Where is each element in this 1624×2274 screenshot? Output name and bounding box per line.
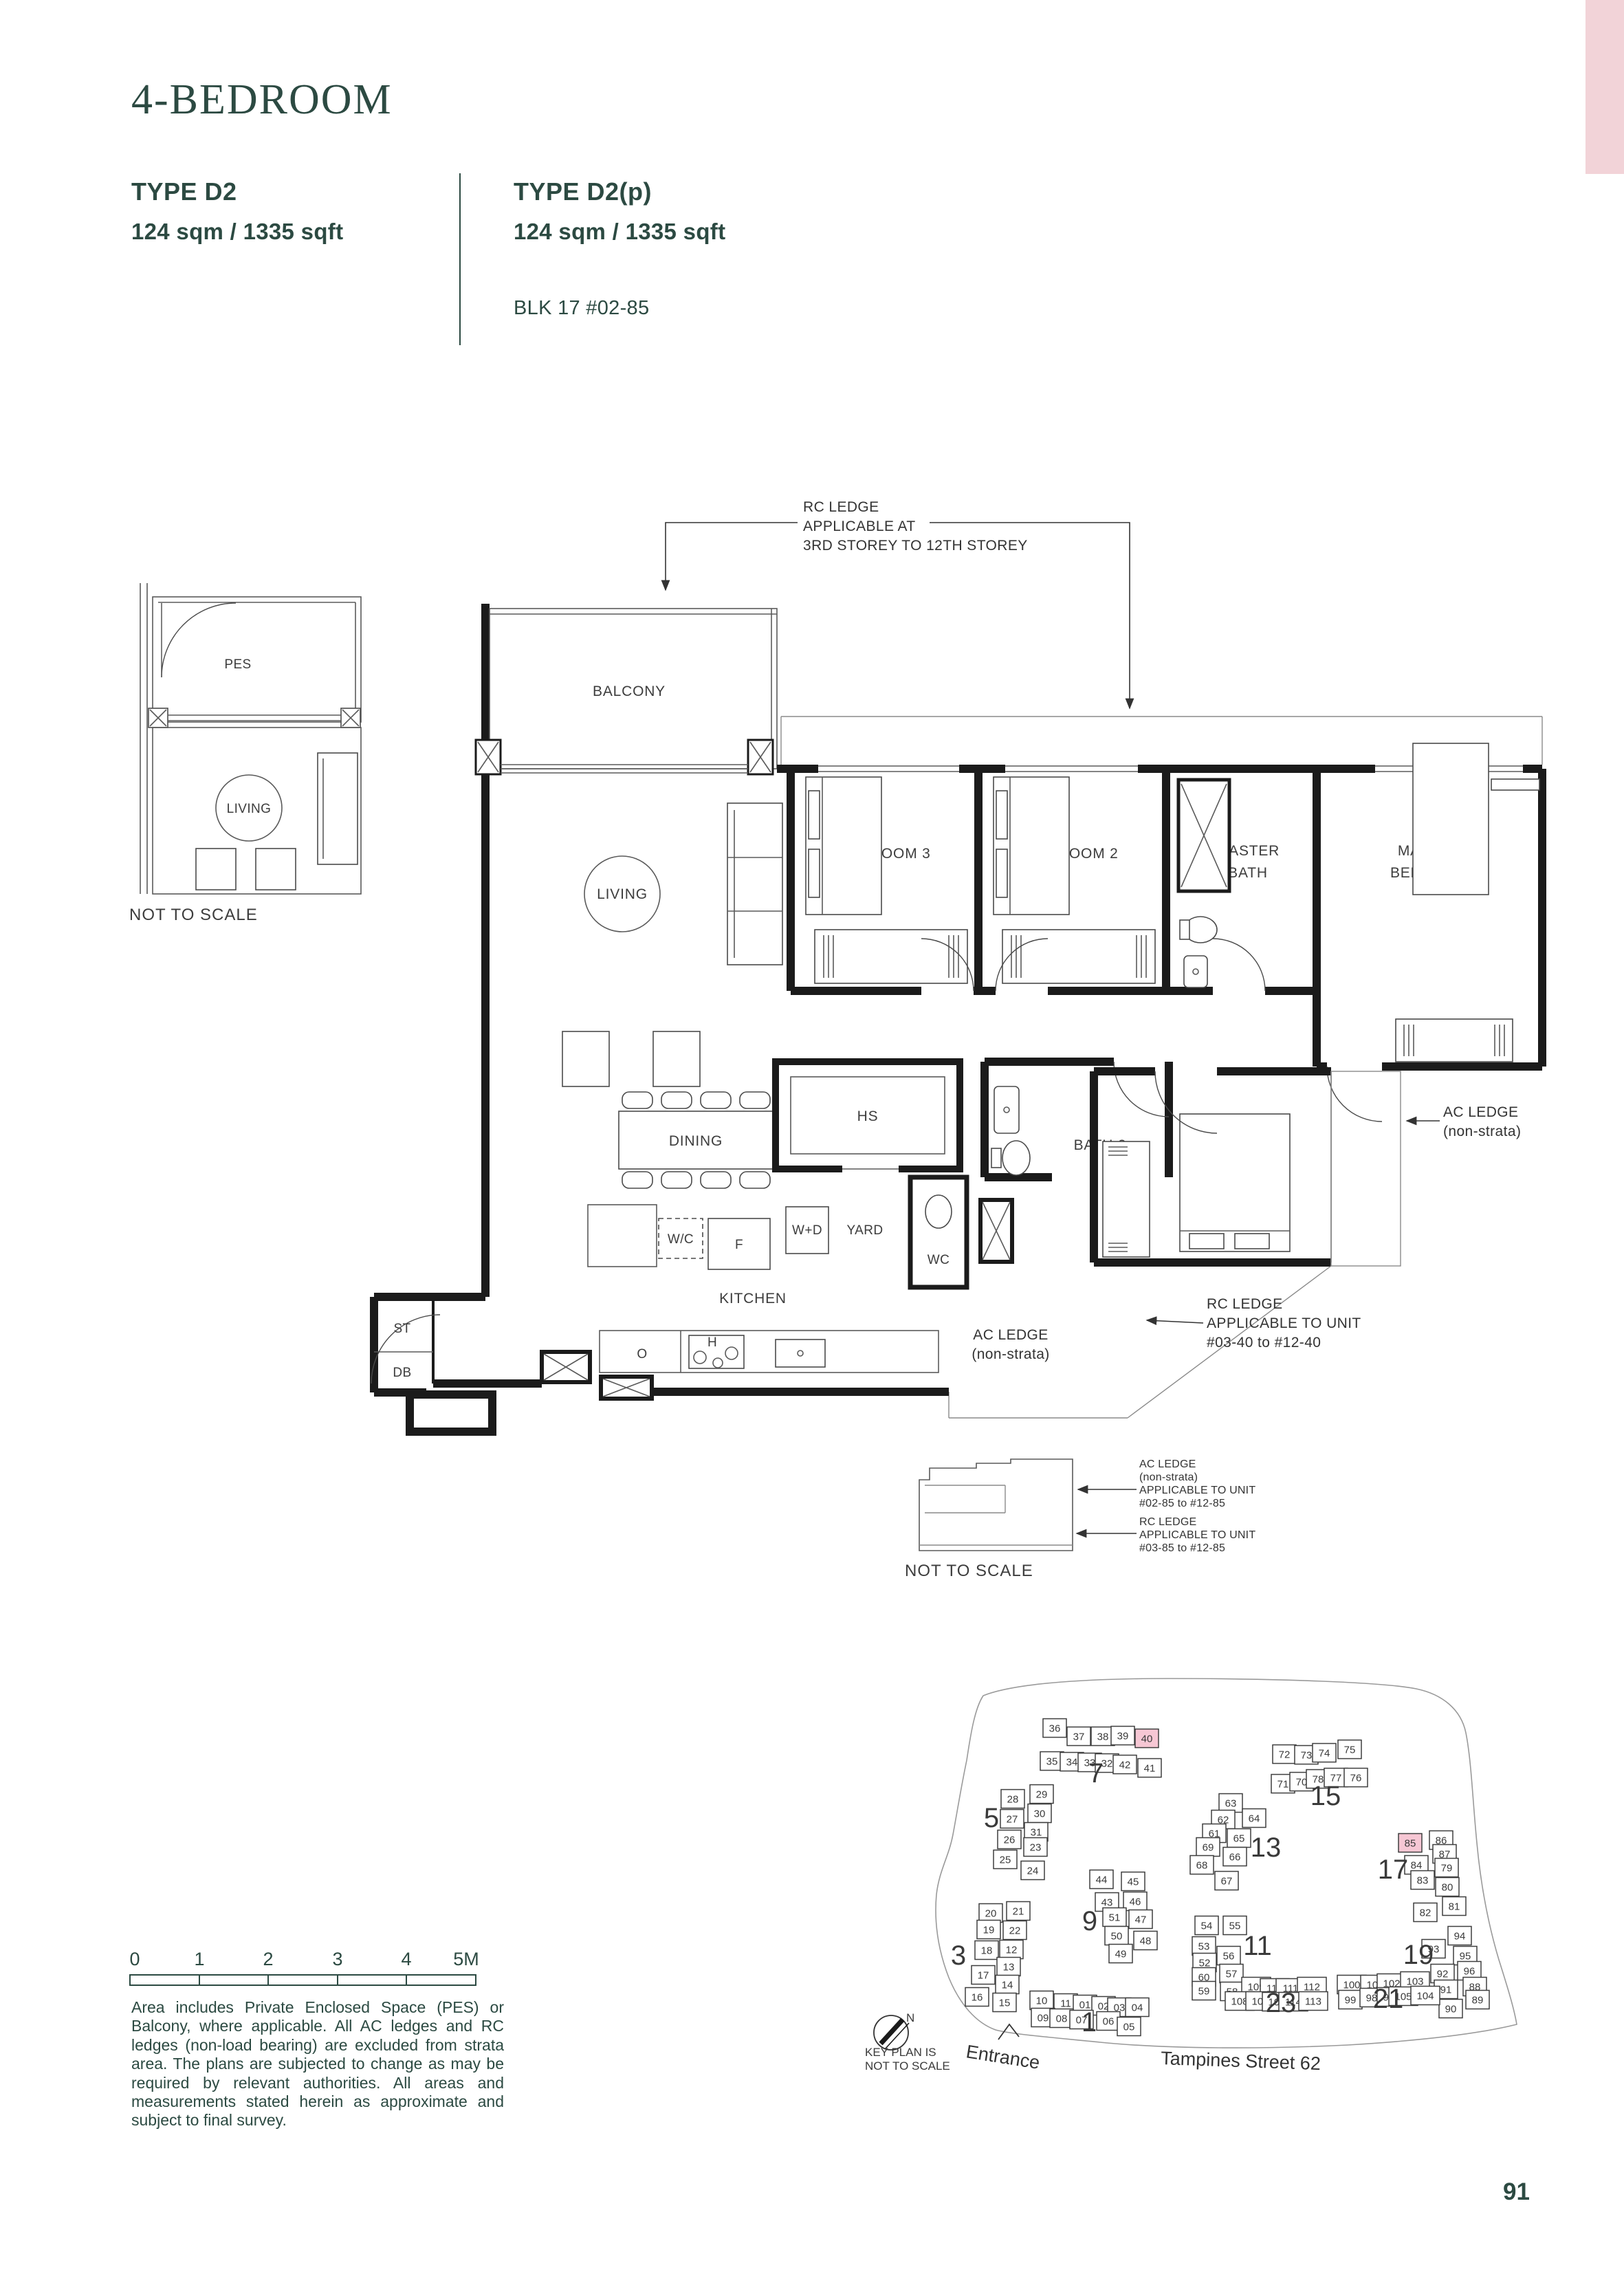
key-plan-block-number: 06 bbox=[1103, 2016, 1115, 2028]
svg-text:APPLICABLE TO UNIT: APPLICABLE TO UNIT bbox=[1207, 1315, 1361, 1331]
key-plan-block: 74 bbox=[1313, 1744, 1336, 1762]
key-plan: 3637383940353433324241282927303126232524… bbox=[865, 1679, 1517, 2074]
key-plan-block: 41 bbox=[1138, 1759, 1161, 1778]
key-plan-block: 79 bbox=[1435, 1859, 1458, 1877]
key-plan-block-number: 76 bbox=[1350, 1773, 1362, 1784]
key-plan-block: 06 bbox=[1097, 2012, 1120, 2031]
key-plan-block-number: 94 bbox=[1454, 1931, 1466, 1943]
detail-not-to-scale: NOT TO SCALE bbox=[905, 1562, 1033, 1580]
key-plan-block: 22 bbox=[1003, 1921, 1027, 1940]
svg-text:(non-strata): (non-strata) bbox=[1443, 1124, 1521, 1139]
scale-5m: 5M bbox=[453, 1949, 479, 1969]
key-plan-block-highlighted: 85 bbox=[1398, 1834, 1422, 1852]
key-plan-block-number: 64 bbox=[1249, 1813, 1260, 1825]
key-plan-block: 14 bbox=[996, 1976, 1019, 1994]
key-plan-block-number: 68 bbox=[1196, 1860, 1208, 1872]
key-plan-block-number: 22 bbox=[1009, 1925, 1021, 1937]
key-plan-block-number: 24 bbox=[1027, 1866, 1039, 1877]
washer-dryer-label: W+D bbox=[792, 1223, 822, 1238]
key-plan-block-number: 16 bbox=[972, 1992, 983, 2004]
svg-text:#03-85 to #12-85: #03-85 to #12-85 bbox=[1139, 1542, 1225, 1554]
key-plan-block-number: 104 bbox=[1416, 1991, 1434, 2002]
fridge-label: F bbox=[735, 1238, 743, 1252]
key-plan-block-number: 46 bbox=[1130, 1896, 1141, 1908]
window-bedroom3 bbox=[818, 763, 959, 774]
key-plan-block: 82 bbox=[1414, 1903, 1437, 1922]
svg-text:3RD STOREY TO 12TH STOREY: 3RD STOREY TO 12TH STOREY bbox=[803, 538, 1028, 554]
key-plan-block-number: 14 bbox=[1002, 1980, 1013, 1991]
key-plan-block: 04 bbox=[1126, 1998, 1149, 2017]
pes-inset-plan: PES LIVING NOT TO SCALE bbox=[129, 583, 361, 924]
key-plan-block: 51 bbox=[1103, 1908, 1126, 1927]
key-plan-block: 44 bbox=[1090, 1870, 1113, 1889]
key-plan-block: 10 bbox=[1030, 1991, 1053, 2010]
key-plan-block-number: 100 bbox=[1343, 1980, 1360, 1991]
db-label: DB bbox=[393, 1366, 411, 1380]
key-plan-block-number: 30 bbox=[1034, 1808, 1046, 1820]
street-label: Tampines Street 62 bbox=[1161, 2048, 1321, 2074]
wc-provision-label: W/C bbox=[668, 1232, 694, 1247]
key-plan-block: 17 bbox=[972, 1966, 995, 1985]
window-bedroom2 bbox=[1005, 763, 1138, 774]
rc-ledge-unit-note: RC LEDGE bbox=[1207, 1296, 1283, 1312]
key-plan-block: 65 bbox=[1227, 1829, 1251, 1848]
key-plan-block: 64 bbox=[1242, 1809, 1266, 1828]
key-plan-block: 48 bbox=[1134, 1932, 1157, 1950]
key-plan-block: 25 bbox=[994, 1850, 1017, 1869]
key-plan-block-number: 73 bbox=[1301, 1750, 1313, 1762]
key-plan-block-number: 04 bbox=[1132, 2002, 1143, 2014]
key-plan-block-number: 41 bbox=[1144, 1763, 1156, 1775]
key-plan-block-number: 83 bbox=[1417, 1875, 1429, 1887]
key-plan-block: 29 bbox=[1030, 1785, 1053, 1804]
key-plan-block-number: 56 bbox=[1223, 1951, 1235, 1963]
key-plan-block: 50 bbox=[1105, 1927, 1128, 1945]
key-plan-block: 36 bbox=[1043, 1719, 1066, 1738]
key-plan-block-number: 81 bbox=[1449, 1901, 1460, 1913]
key-plan-block: 94 bbox=[1448, 1927, 1471, 1945]
key-plan-block: 21 bbox=[1007, 1902, 1030, 1921]
key-plan-block-number: 67 bbox=[1221, 1876, 1233, 1888]
key-plan-block-number: 69 bbox=[1203, 1842, 1214, 1854]
key-plan-block: 72 bbox=[1273, 1745, 1296, 1764]
yard-label: YARD bbox=[847, 1223, 884, 1238]
key-plan-block: 42 bbox=[1113, 1756, 1137, 1774]
key-plan-block-number: 42 bbox=[1119, 1760, 1131, 1771]
key-plan-block: 67 bbox=[1215, 1872, 1238, 1890]
key-plan-block-number: 72 bbox=[1279, 1749, 1291, 1761]
key-plan-block: 83 bbox=[1411, 1871, 1434, 1890]
key-plan-block-number: 113 bbox=[1305, 1996, 1321, 2008]
key-plan-block: 23 bbox=[1024, 1838, 1047, 1857]
ac-ledge-kitchen-note: AC LEDGE bbox=[973, 1327, 1048, 1343]
hs-label: HS bbox=[857, 1108, 879, 1124]
key-plan-cluster-label: 3 bbox=[951, 1940, 966, 1971]
key-plan-block-number: 44 bbox=[1096, 1874, 1108, 1886]
wc-label: WC bbox=[928, 1253, 950, 1267]
pes-living-label: LIVING bbox=[227, 802, 272, 816]
key-plan-block-number: 23 bbox=[1030, 1842, 1042, 1854]
key-plan-cluster-label: 11 bbox=[1243, 1931, 1272, 1961]
key-plan-block-number: 45 bbox=[1128, 1877, 1139, 1888]
key-plan-cluster-label: 23 bbox=[1266, 1988, 1297, 2018]
key-plan-block-highlighted: 40 bbox=[1135, 1729, 1159, 1748]
key-plan-block: 104 bbox=[1411, 1987, 1440, 2005]
key-plan-block-number: 74 bbox=[1319, 1748, 1330, 1760]
key-plan-block: 89 bbox=[1466, 1991, 1489, 2009]
svg-text:APPLICABLE AT: APPLICABLE AT bbox=[803, 518, 916, 534]
pes-label: PES bbox=[224, 657, 251, 672]
key-plan-block-number: 79 bbox=[1441, 1863, 1453, 1874]
entrance-label: Entrance bbox=[965, 2041, 1041, 2073]
key-plan-block-number: 59 bbox=[1198, 1986, 1210, 1998]
key-plan-block-number: 51 bbox=[1109, 1912, 1121, 1924]
key-plan-block: 12 bbox=[1000, 1940, 1023, 1959]
living-label: LIVING bbox=[597, 886, 648, 902]
key-plan-cluster-label: 1 bbox=[1082, 2007, 1097, 2037]
key-plan-block-number: 92 bbox=[1437, 1969, 1449, 1980]
key-plan-block: 28 bbox=[1001, 1790, 1024, 1808]
scale-3: 3 bbox=[332, 1949, 342, 1969]
north-label: N bbox=[906, 2011, 914, 2024]
key-plan-cluster-label: 5 bbox=[984, 1803, 999, 1833]
key-plan-block: 26 bbox=[998, 1830, 1021, 1849]
key-plan-block-number: 85 bbox=[1405, 1838, 1416, 1850]
key-plan-cluster-label: 7 bbox=[1088, 1758, 1104, 1789]
svg-text:APPLICABLE TO UNIT: APPLICABLE TO UNIT bbox=[1139, 1529, 1255, 1541]
key-plan-block: 47 bbox=[1129, 1910, 1152, 1929]
floor-plan-canvas: PES LIVING NOT TO SCALE RC LEDGE APPLICA… bbox=[0, 0, 1624, 2274]
detail-ac-note: AC LEDGE bbox=[1139, 1458, 1196, 1470]
key-plan-block: 63 bbox=[1219, 1794, 1242, 1813]
key-plan-block: 37 bbox=[1067, 1727, 1090, 1746]
kitchen-label: KITCHEN bbox=[719, 1291, 787, 1307]
key-plan-block-number: 37 bbox=[1073, 1731, 1085, 1743]
key-plan-cluster-label: 13 bbox=[1251, 1833, 1282, 1863]
key-plan-block-number: 12 bbox=[1006, 1945, 1018, 1956]
key-plan-cluster-label: 15 bbox=[1310, 1781, 1341, 1811]
key-plan-block-number: 90 bbox=[1445, 2004, 1457, 2015]
key-plan-caption: KEY PLAN IS bbox=[865, 2046, 936, 2059]
svg-text:BATH: BATH bbox=[1228, 865, 1268, 881]
scale-1: 1 bbox=[194, 1949, 204, 1969]
key-plan-block: 05 bbox=[1117, 2018, 1141, 2036]
key-plan-block: 45 bbox=[1121, 1872, 1145, 1891]
key-plan-block-number: 55 bbox=[1229, 1921, 1241, 1932]
key-plan-block: 13 bbox=[997, 1958, 1020, 1976]
key-plan-block-number: 39 bbox=[1117, 1731, 1129, 1742]
key-plan-block-number: 35 bbox=[1046, 1756, 1058, 1768]
key-plan-block-number: 17 bbox=[978, 1970, 989, 1982]
key-plan-block-number: 34 bbox=[1066, 1757, 1078, 1769]
svg-text:(non-strata): (non-strata) bbox=[972, 1346, 1049, 1362]
key-plan-block-number: 20 bbox=[985, 1908, 997, 1920]
key-plan-block: 90 bbox=[1439, 2000, 1462, 2018]
key-plan-block: 53 bbox=[1192, 1937, 1216, 1956]
key-plan-block-number: 53 bbox=[1198, 1941, 1210, 1953]
key-plan-block-number: 48 bbox=[1140, 1936, 1152, 1947]
scale-0: 0 bbox=[129, 1949, 140, 1969]
key-plan-block-number: 75 bbox=[1344, 1745, 1356, 1756]
key-plan-block-number: 65 bbox=[1233, 1833, 1245, 1845]
key-plan-block-number: 13 bbox=[1003, 1962, 1015, 1974]
key-plan-block: 20 bbox=[979, 1904, 1002, 1923]
key-plan-block: 19 bbox=[977, 1921, 1000, 1939]
key-plan-block: 66 bbox=[1223, 1848, 1247, 1866]
key-plan-block-number: 28 bbox=[1007, 1794, 1019, 1806]
key-plan-block: 76 bbox=[1344, 1769, 1368, 1787]
key-plan-block-number: 08 bbox=[1056, 2013, 1068, 2025]
key-plan-block-number: 70 bbox=[1296, 1777, 1308, 1789]
key-plan-block-number: 91 bbox=[1440, 1985, 1452, 1996]
key-plan-block: 30 bbox=[1028, 1804, 1051, 1823]
key-plan-block: 68 bbox=[1190, 1856, 1214, 1874]
key-plan-block: 39 bbox=[1111, 1727, 1134, 1745]
key-plan-block: 49 bbox=[1109, 1945, 1132, 1963]
key-plan-block-number: 36 bbox=[1049, 1723, 1061, 1735]
key-plan-block-number: 63 bbox=[1225, 1798, 1237, 1810]
key-plan-block-number: 25 bbox=[1000, 1855, 1011, 1866]
key-plan-block-number: 40 bbox=[1141, 1734, 1153, 1745]
svg-text:APPLICABLE TO UNIT: APPLICABLE TO UNIT bbox=[1139, 1485, 1255, 1496]
north-compass-icon: N bbox=[874, 2011, 914, 2050]
key-plan-block-number: 84 bbox=[1411, 1860, 1423, 1872]
key-plan-blocks: 3637383940353433324241282927303126232524… bbox=[965, 1719, 1489, 2036]
key-plan-block: 113 bbox=[1299, 1992, 1328, 2011]
key-plan-block-number: 11 bbox=[1060, 1998, 1071, 2010]
key-plan-block: 56 bbox=[1217, 1947, 1240, 1965]
key-plan-block: 54 bbox=[1195, 1916, 1218, 1935]
key-plan-block-number: 95 bbox=[1460, 1951, 1471, 1963]
key-plan-block-number: 27 bbox=[1007, 1814, 1018, 1826]
key-plan-block: 59 bbox=[1192, 1982, 1216, 2000]
key-plan-block-number: 19 bbox=[983, 1925, 995, 1936]
balcony-label: BALCONY bbox=[593, 684, 666, 699]
dining-label: DINING bbox=[669, 1133, 723, 1149]
key-plan-block: 24 bbox=[1021, 1861, 1044, 1880]
svg-text:(non-strata): (non-strata) bbox=[1139, 1472, 1198, 1483]
key-plan-block: 57 bbox=[1220, 1965, 1243, 1983]
ledge-detail-inset: AC LEDGE (non-strata) APPLICABLE TO UNIT… bbox=[905, 1458, 1255, 1580]
rc-ledge-top-note: RC LEDGE bbox=[803, 499, 879, 515]
key-plan-block-number: 66 bbox=[1229, 1852, 1241, 1863]
key-plan-block-number: 05 bbox=[1123, 2022, 1135, 2033]
key-plan-block-number: 21 bbox=[1013, 1906, 1024, 1918]
key-plan-block-number: 50 bbox=[1111, 1931, 1123, 1943]
key-plan-block-number: 38 bbox=[1097, 1731, 1109, 1743]
key-plan-cluster-label: 17 bbox=[1378, 1855, 1409, 1885]
ac-ledge-right-note: AC LEDGE bbox=[1443, 1104, 1518, 1120]
key-plan-cluster-label: 9 bbox=[1082, 1906, 1097, 1936]
key-plan-block-number: 54 bbox=[1201, 1921, 1213, 1932]
key-plan-cluster-label: 19 bbox=[1403, 1940, 1434, 1970]
key-plan-block: 75 bbox=[1338, 1740, 1361, 1759]
key-plan-block: 80 bbox=[1436, 1878, 1459, 1896]
scale-2: 2 bbox=[263, 1949, 273, 1969]
key-plan-block: 99 bbox=[1339, 1991, 1362, 2009]
key-plan-block: 81 bbox=[1442, 1897, 1466, 1916]
st-label: ST bbox=[393, 1322, 410, 1336]
main-floor-plan: RC LEDGE APPLICABLE AT 3RD STOREY TO 12T… bbox=[371, 499, 1542, 1432]
key-plan-block-number: 99 bbox=[1345, 1995, 1357, 2007]
key-plan-block-number: 15 bbox=[999, 1998, 1011, 2009]
scale-bar: 0 1 2 3 4 5M bbox=[129, 1949, 479, 1985]
key-plan-block-number: 26 bbox=[1004, 1835, 1016, 1846]
key-plan-block-number: 80 bbox=[1442, 1882, 1453, 1894]
svg-text:#03-40 to #12-40: #03-40 to #12-40 bbox=[1207, 1335, 1321, 1351]
key-plan-block-number: 71 bbox=[1277, 1779, 1289, 1791]
svg-text:#02-85 to #12-85: #02-85 to #12-85 bbox=[1139, 1498, 1225, 1509]
key-plan-block: 15 bbox=[993, 1993, 1016, 2012]
key-plan-block: 46 bbox=[1123, 1892, 1147, 1911]
key-plan-cluster-label: 21 bbox=[1373, 1984, 1404, 2014]
oven-label: O bbox=[637, 1347, 647, 1362]
key-plan-block: 69 bbox=[1196, 1838, 1220, 1857]
key-plan-block-number: 09 bbox=[1038, 2013, 1049, 2024]
key-plan-block-number: 89 bbox=[1472, 1995, 1484, 2007]
key-plan-block-number: 57 bbox=[1226, 1969, 1238, 1980]
detail-rc-note: RC LEDGE bbox=[1139, 1516, 1196, 1528]
key-plan-block-number: 18 bbox=[981, 1945, 993, 1957]
hob-label: H bbox=[707, 1335, 717, 1350]
key-plan-block-number: 43 bbox=[1101, 1897, 1113, 1909]
key-plan-block-number: 47 bbox=[1135, 1914, 1147, 1926]
key-plan-block-number: 31 bbox=[1031, 1827, 1042, 1839]
key-plan-block: 18 bbox=[975, 1941, 998, 1960]
key-plan-block: 16 bbox=[965, 1988, 989, 2007]
key-plan-block-number: 10 bbox=[1036, 1996, 1048, 2007]
key-plan-block-number: 49 bbox=[1115, 1949, 1127, 1960]
key-plan-block-number: 96 bbox=[1464, 1966, 1475, 1978]
scale-4: 4 bbox=[401, 1949, 411, 1969]
key-plan-block: 27 bbox=[1000, 1810, 1024, 1828]
svg-text:NOT TO SCALE: NOT TO SCALE bbox=[865, 2059, 950, 2073]
pes-not-to-scale: NOT TO SCALE bbox=[129, 906, 258, 924]
key-plan-block-number: 82 bbox=[1420, 1907, 1431, 1919]
key-plan-block-number: 29 bbox=[1036, 1789, 1048, 1801]
